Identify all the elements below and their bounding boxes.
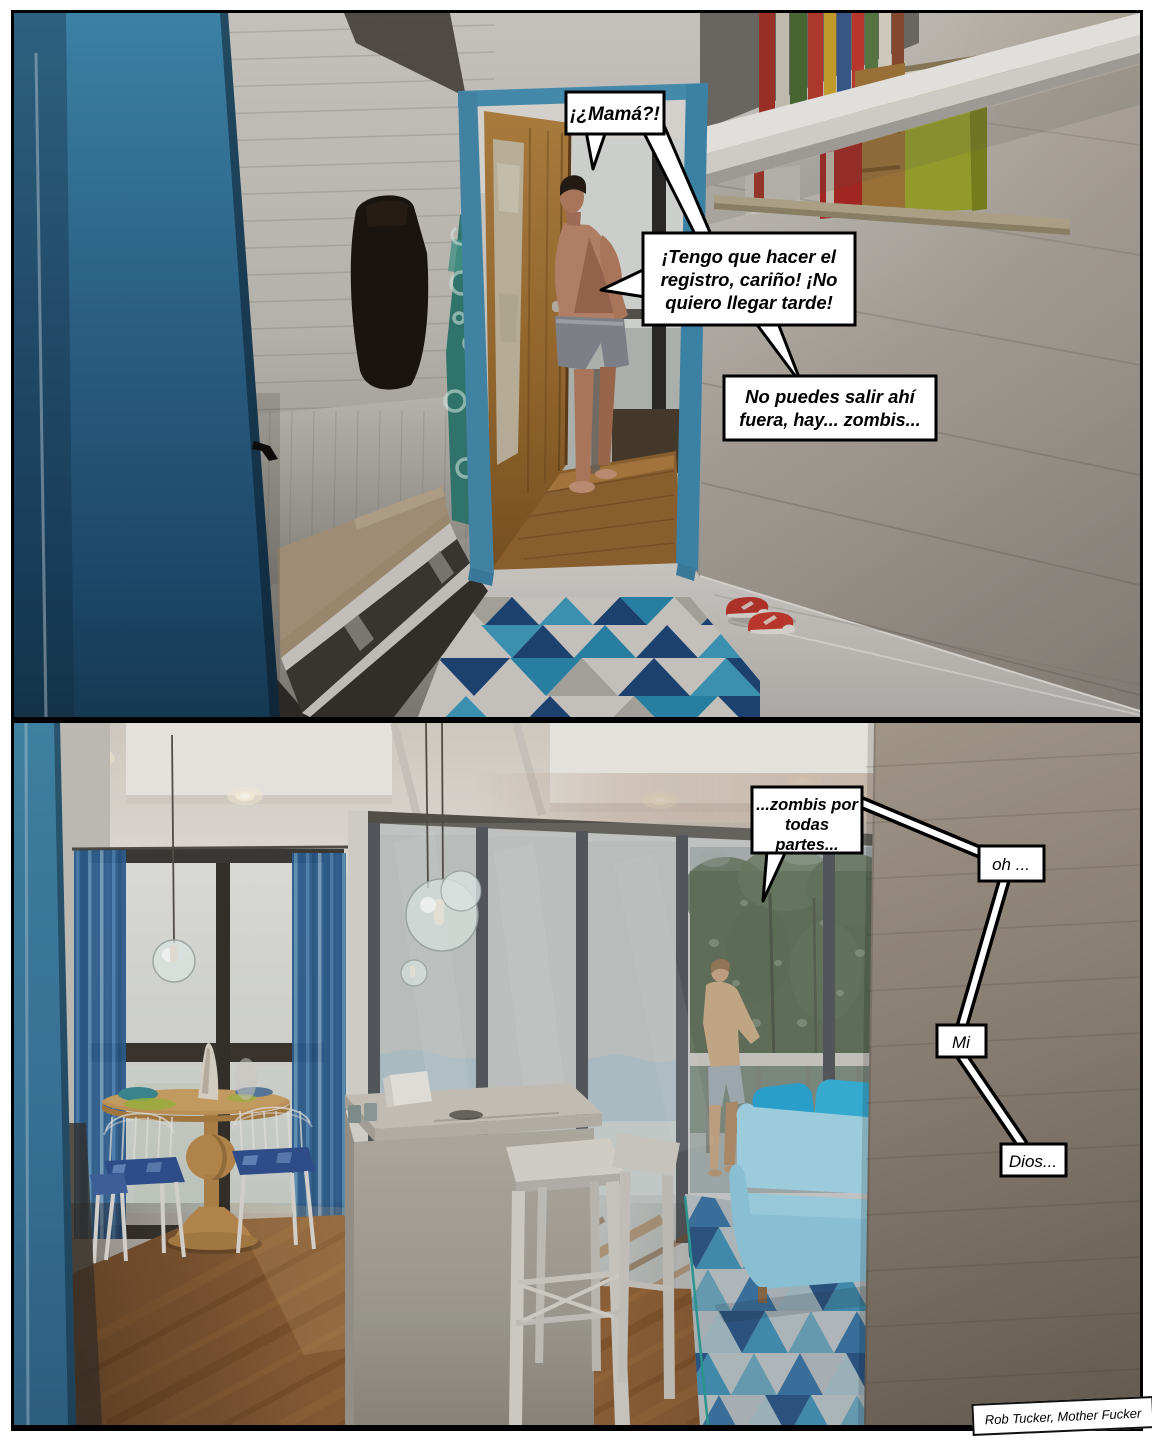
svg-text:No puedes salir ahí: No puedes salir ahí	[745, 386, 917, 407]
svg-text:oh ...: oh ...	[992, 855, 1030, 874]
svg-text:...zombis por: ...zombis por	[756, 796, 859, 814]
svg-text:fuera, hay... zombis...: fuera, hay... zombis...	[739, 410, 920, 430]
svg-text:quiero llegar tarde!: quiero llegar tarde!	[665, 292, 833, 313]
svg-text:¡¿Mamá?!: ¡¿Mamá?!	[570, 104, 660, 125]
svg-text:partes...: partes...	[774, 836, 838, 854]
svg-text:registro, cariño! ¡No: registro, cariño! ¡No	[661, 269, 838, 290]
svg-text:Mi: Mi	[952, 1033, 971, 1052]
svg-text:Dios...: Dios...	[1009, 1152, 1057, 1171]
svg-text:¡Tengo que hacer el: ¡Tengo que hacer el	[662, 246, 837, 267]
svg-text:todas: todas	[785, 816, 829, 834]
